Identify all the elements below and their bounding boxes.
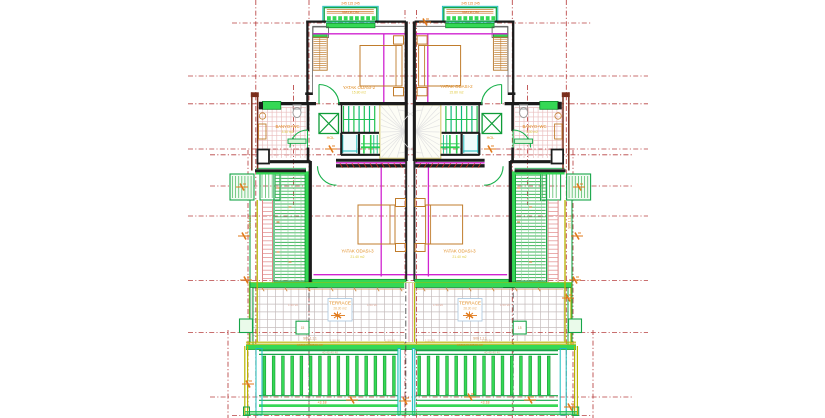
svg-text:YATAK ODASI-2: YATAK ODASI-2 [440, 84, 473, 89]
svg-text:HOL: HOL [487, 136, 495, 140]
svg-text:BALKON: BALKON [462, 10, 478, 15]
svg-text:TERRACE: TERRACE [459, 301, 481, 306]
svg-text:15.80 m2: 15.80 m2 [352, 91, 366, 95]
svg-text:S06 1.1.1: S06 1.1.1 [248, 215, 252, 229]
svg-text:ASMA KORKULUK: ASMA KORKULUK [297, 343, 324, 347]
svg-text:15: 15 [301, 326, 305, 330]
svg-text:YATAK ODASI-3: YATAK ODASI-3 [341, 249, 374, 254]
svg-text:28.30 m2: 28.30 m2 [463, 307, 477, 311]
svg-text:1.50 90: 1.50 90 [385, 339, 395, 343]
svg-text:+3.18: +3.18 [480, 401, 489, 405]
svg-text:1.50 90: 1.50 90 [367, 303, 377, 307]
svg-text:+3.18: +3.18 [317, 401, 326, 405]
svg-text:YATAK ODASI-2: YATAK ODASI-2 [343, 85, 376, 90]
svg-text:S06 1.1.1: S06 1.1.1 [303, 337, 317, 341]
svg-text:40 40 40 40: 40 40 40 40 [484, 351, 500, 355]
svg-text:TERRACE: TERRACE [329, 301, 351, 306]
svg-text:21.40 m2: 21.40 m2 [452, 255, 466, 259]
svg-text:1.50 90: 1.50 90 [288, 303, 298, 307]
svg-text:245 115 245: 245 115 245 [341, 2, 360, 6]
svg-text:YATAK ODASI-3: YATAK ODASI-3 [443, 249, 476, 254]
svg-text:HOL: HOL [327, 136, 335, 140]
svg-text:245 115 245: 245 115 245 [461, 2, 480, 6]
svg-text:3.30 m2: 3.30 m2 [282, 130, 294, 134]
svg-text:1.50 90: 1.50 90 [433, 303, 443, 307]
svg-text:15: 15 [518, 326, 522, 330]
svg-text:28.30 m2: 28.30 m2 [333, 307, 347, 311]
svg-text:BANYO+WC: BANYO+WC [522, 124, 546, 129]
svg-text:S06 1.1.1: S06 1.1.1 [473, 337, 487, 341]
svg-text:40 40 40 40: 40 40 40 40 [322, 351, 338, 355]
svg-text:1.50 90: 1.50 90 [330, 339, 340, 343]
svg-text:15.80 m2: 15.80 m2 [449, 91, 463, 95]
svg-text:3.30 m2: 3.30 m2 [526, 130, 538, 134]
svg-text:BANYO+WC: BANYO+WC [275, 124, 299, 129]
svg-text:1.50 90: 1.50 90 [425, 339, 435, 343]
svg-text:1.50 90: 1.50 90 [500, 303, 510, 307]
svg-text:ASMA KORKULUK: ASMA KORKULUK [457, 343, 484, 347]
svg-text:S06 1.1.1: S06 1.1.1 [568, 215, 572, 229]
svg-text:BALKON: BALKON [342, 10, 358, 15]
svg-text:21.40 m2: 21.40 m2 [350, 255, 364, 259]
